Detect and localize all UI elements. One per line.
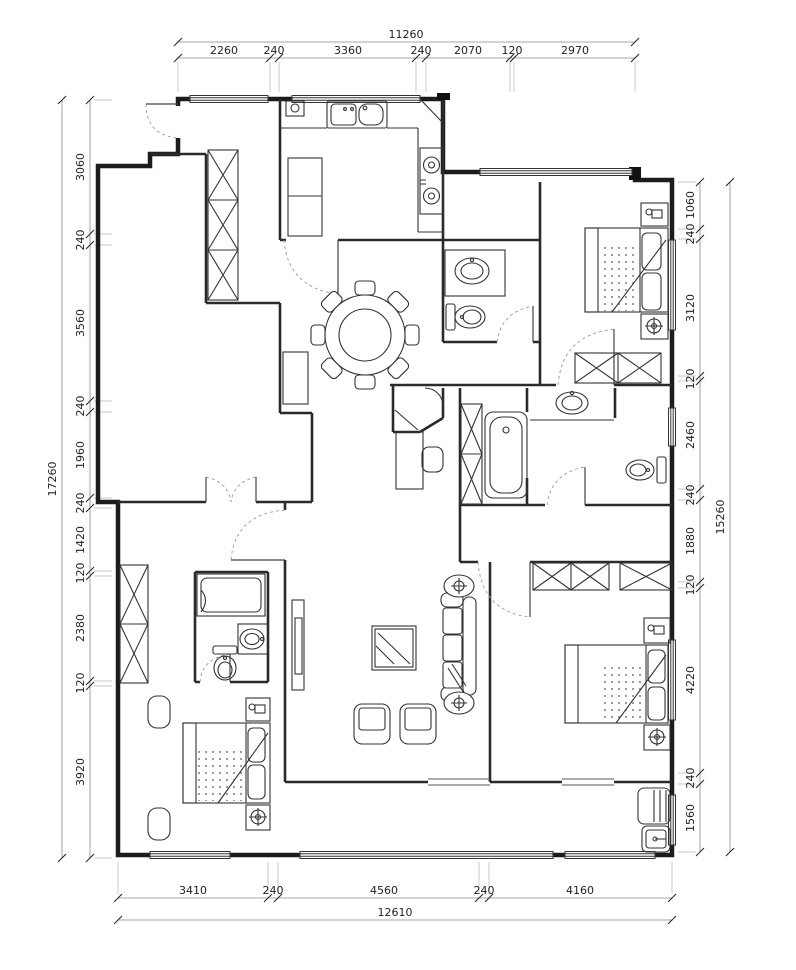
dim-label: 3410: [179, 884, 207, 897]
counter: [280, 99, 443, 232]
nightstand: [644, 618, 670, 643]
dim-label: 120: [502, 44, 523, 57]
hall-cabinet: [283, 352, 308, 404]
bathroom-guest: [445, 250, 505, 330]
dim-label-left-total: 17260: [46, 462, 59, 497]
wardrobe-icon: [120, 565, 148, 683]
bed-icon: [585, 228, 668, 312]
dim-label: 4160: [566, 884, 594, 897]
dim-label: 1960: [74, 441, 87, 469]
nightstand: [641, 314, 668, 339]
balcony: [638, 788, 670, 852]
dim-label: 2260: [210, 44, 238, 57]
entry-wardrobe-icon: [208, 150, 238, 300]
sink-icon: [238, 624, 268, 654]
dim-label: 120: [684, 575, 697, 596]
dim-label: 1560: [684, 804, 697, 832]
nightstand: [644, 725, 670, 750]
dim-label: 240: [263, 884, 284, 897]
sink-icon: [556, 391, 588, 414]
dim-label: 240: [74, 493, 87, 514]
stove-icon: [420, 148, 443, 214]
dim-label: 240: [474, 884, 495, 897]
sofa-icon: [441, 593, 476, 701]
toilet-icon: [213, 646, 237, 680]
dim-label: 3360: [334, 44, 362, 57]
dim-label: 1060: [684, 191, 697, 219]
bedroom-bottom-right: [533, 563, 672, 750]
door-leaves: [146, 104, 614, 682]
fridge-icon: [288, 158, 322, 236]
dim-label: 120: [74, 673, 87, 694]
flower-icon: [645, 317, 663, 335]
bath-center-study: [395, 388, 666, 504]
dim-label: 2970: [561, 44, 589, 57]
dim-label: 3120: [684, 294, 697, 322]
window: [669, 408, 676, 446]
dim-label: 2070: [454, 44, 482, 57]
dim-label: 240: [684, 224, 697, 245]
dim-label: 4220: [684, 666, 697, 694]
nightstand: [246, 698, 270, 721]
toilet-icon: [626, 457, 666, 483]
nightstand: [246, 805, 270, 830]
dim-label: 120: [74, 563, 87, 584]
doorbell-icon: [286, 101, 304, 116]
flower-icon: [249, 808, 267, 826]
washing-machine-icon: [638, 788, 670, 824]
flower-icon: [648, 728, 666, 746]
window: [669, 640, 676, 720]
window: [480, 169, 632, 176]
bedroom-top-right: [575, 203, 668, 383]
window: [150, 852, 230, 859]
dim-label-bottom-total: 12610: [378, 906, 413, 919]
dim-label: 3060: [74, 153, 87, 181]
dim-label: 240: [264, 44, 285, 57]
dim-label: 1420: [74, 526, 87, 554]
armchair-icon: [400, 704, 436, 744]
armchair-icon: [148, 808, 170, 840]
window: [669, 240, 676, 330]
wardrobe-icon: [533, 563, 609, 590]
dim-label: 240: [74, 396, 87, 417]
toilet-icon: [446, 304, 485, 330]
dim-label: 2380: [74, 614, 87, 642]
window: [300, 852, 553, 859]
side-table-icon: [444, 575, 474, 597]
dim-label-right-total: 15260: [714, 500, 727, 535]
armchair-icon: [148, 696, 170, 728]
dim-label: 4560: [370, 884, 398, 897]
cabinet-icon: [461, 404, 482, 504]
sink-icon: [455, 258, 489, 284]
dim-label: 2460: [684, 421, 697, 449]
kitchen-sink-icon: [327, 101, 387, 128]
vanity-counter: [445, 250, 505, 296]
dim-label: 240: [74, 230, 87, 251]
lamp-icon: [648, 625, 664, 634]
dim-label: 240: [411, 44, 432, 57]
bed-icon: [183, 723, 270, 803]
coffee-table-icon: [372, 626, 416, 670]
dining-table-inner: [339, 309, 391, 361]
dim-label: 120: [684, 369, 697, 390]
window: [565, 852, 655, 859]
tv-cabinet: [292, 600, 304, 690]
nightstand: [641, 203, 668, 226]
living-room: [292, 575, 476, 744]
window: [190, 96, 268, 103]
dim-label-top-total: 11260: [389, 28, 424, 41]
lamp-icon: [646, 209, 662, 218]
doors: [146, 104, 614, 785]
kitchen: [280, 99, 443, 236]
laundry-sink-icon: [642, 826, 670, 852]
dim-label: 3560: [74, 309, 87, 337]
shower-icon: [197, 574, 265, 616]
floor-plan-svg: 11260 2260 240 3360 240 2070 120 2970 34…: [0, 0, 796, 970]
dim-label: 240: [684, 768, 697, 789]
dim-label: 240: [684, 485, 697, 506]
side-table-icon: [444, 692, 474, 714]
desk-icon: [396, 432, 443, 489]
wall-piers: [437, 93, 641, 180]
wardrobe-icon: [575, 353, 661, 383]
door-swing-arcs: [146, 104, 614, 682]
bathtub-icon: [485, 412, 527, 498]
dim-label: 3920: [74, 758, 87, 786]
bed-icon: [565, 645, 668, 723]
armchair-icon: [354, 704, 390, 744]
wardrobe-icon: [620, 563, 672, 590]
lamp-icon: [249, 704, 265, 713]
floor-plan-page: 11260 2260 240 3360 240 2070 120 2970 34…: [0, 0, 796, 970]
dim-label: 1880: [684, 527, 697, 555]
